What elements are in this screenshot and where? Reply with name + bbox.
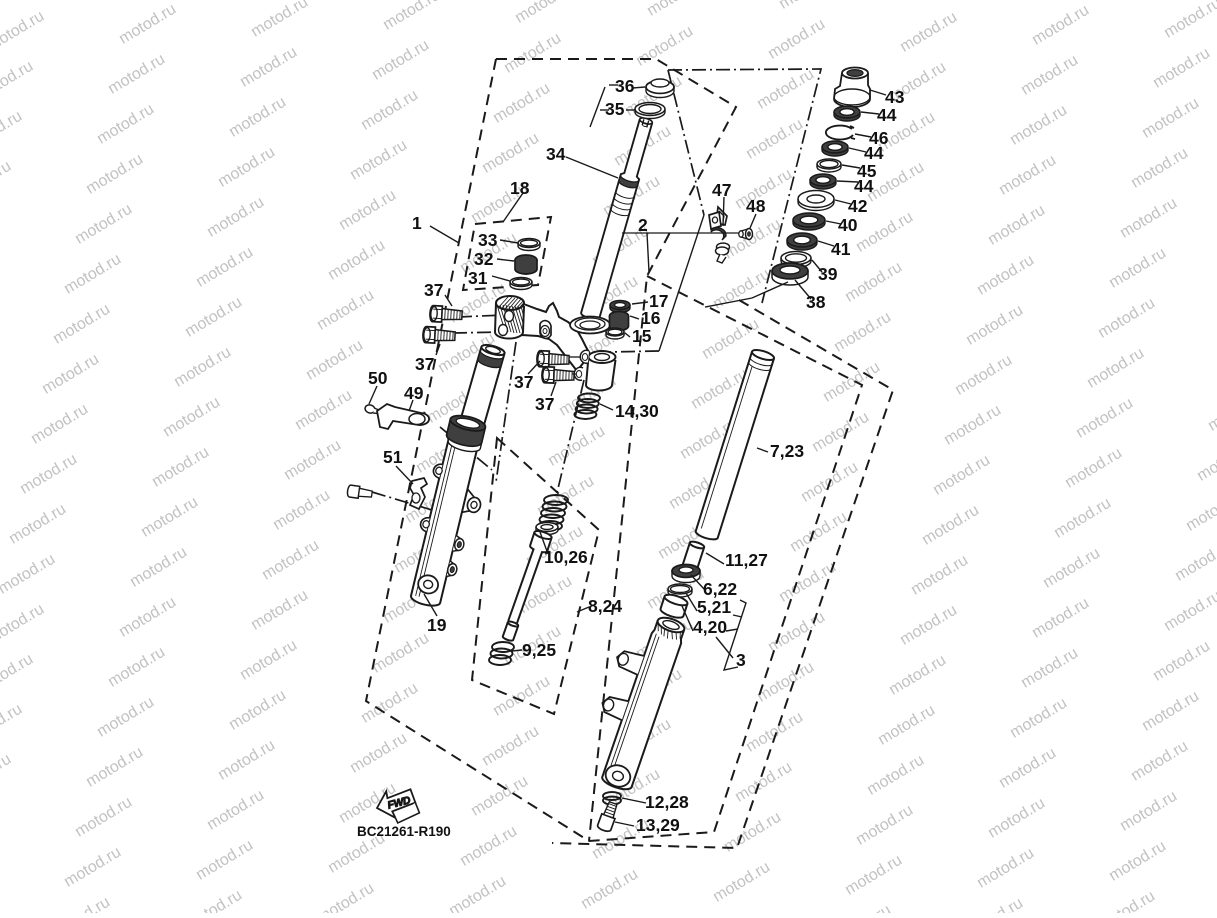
svg-text:49: 49 bbox=[404, 383, 424, 403]
svg-text:44: 44 bbox=[854, 176, 874, 196]
svg-text:42: 42 bbox=[848, 196, 868, 216]
svg-text:5,21: 5,21 bbox=[697, 597, 731, 617]
svg-text:BC21261-R190: BC21261-R190 bbox=[357, 824, 451, 839]
svg-text:43: 43 bbox=[885, 87, 905, 107]
svg-text:12,28: 12,28 bbox=[645, 792, 689, 812]
svg-text:18: 18 bbox=[510, 178, 530, 198]
svg-text:37: 37 bbox=[424, 280, 443, 300]
svg-text:37: 37 bbox=[514, 372, 533, 392]
svg-text:47: 47 bbox=[712, 180, 731, 200]
svg-text:37: 37 bbox=[415, 354, 434, 374]
svg-text:13,29: 13,29 bbox=[636, 815, 680, 835]
svg-text:44: 44 bbox=[864, 143, 884, 163]
svg-text:41: 41 bbox=[831, 239, 851, 259]
svg-text:4,20: 4,20 bbox=[693, 617, 727, 637]
svg-text:50: 50 bbox=[368, 368, 388, 388]
svg-text:10,26: 10,26 bbox=[544, 547, 588, 567]
svg-text:15: 15 bbox=[632, 326, 652, 346]
svg-text:33: 33 bbox=[478, 230, 498, 250]
svg-text:37: 37 bbox=[535, 394, 554, 414]
svg-text:8,24: 8,24 bbox=[588, 596, 622, 616]
svg-text:31: 31 bbox=[468, 268, 488, 288]
svg-text:6,22: 6,22 bbox=[703, 579, 737, 599]
svg-text:1: 1 bbox=[412, 213, 422, 233]
svg-text:39: 39 bbox=[818, 264, 838, 284]
svg-text:35: 35 bbox=[605, 99, 625, 119]
svg-text:11,27: 11,27 bbox=[725, 550, 768, 570]
svg-text:32: 32 bbox=[474, 249, 494, 269]
svg-text:51: 51 bbox=[383, 447, 403, 467]
svg-text:36: 36 bbox=[615, 76, 635, 96]
svg-text:14,30: 14,30 bbox=[615, 401, 659, 421]
svg-text:44: 44 bbox=[877, 105, 897, 125]
svg-text:2: 2 bbox=[638, 215, 648, 235]
svg-text:19: 19 bbox=[427, 615, 447, 635]
svg-text:7,23: 7,23 bbox=[770, 441, 804, 461]
svg-text:40: 40 bbox=[838, 215, 858, 235]
svg-text:16: 16 bbox=[641, 308, 661, 328]
svg-text:38: 38 bbox=[806, 292, 826, 312]
svg-text:3: 3 bbox=[736, 650, 746, 670]
svg-text:34: 34 bbox=[546, 144, 566, 164]
svg-text:48: 48 bbox=[746, 196, 766, 216]
svg-text:9,25: 9,25 bbox=[522, 640, 556, 660]
